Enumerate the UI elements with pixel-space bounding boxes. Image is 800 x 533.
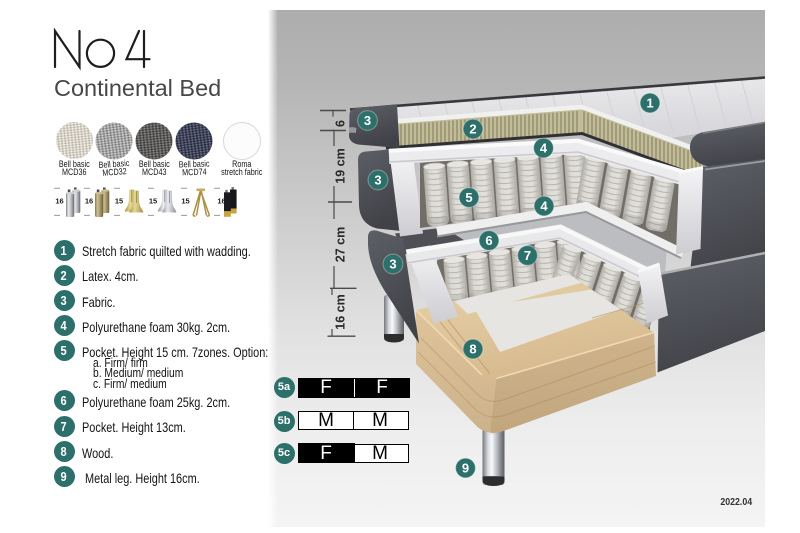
svg-text:4: 4	[540, 199, 548, 214]
svg-text:1: 1	[646, 96, 653, 111]
svg-text:6: 6	[485, 233, 492, 248]
svg-text:5: 5	[465, 190, 472, 205]
svg-text:8: 8	[469, 342, 476, 357]
svg-text:7: 7	[524, 248, 531, 263]
svg-text:4: 4	[540, 141, 548, 156]
svg-text:2: 2	[469, 122, 476, 137]
svg-text:16 cm: 16 cm	[334, 294, 348, 329]
svg-text:3: 3	[364, 113, 371, 128]
svg-text:3: 3	[374, 173, 381, 188]
svg-text:6: 6	[334, 120, 348, 127]
svg-text:9: 9	[462, 461, 469, 476]
svg-text:19 cm: 19 cm	[334, 148, 348, 183]
svg-text:3: 3	[389, 257, 396, 272]
svg-text:27 cm: 27 cm	[334, 227, 348, 262]
